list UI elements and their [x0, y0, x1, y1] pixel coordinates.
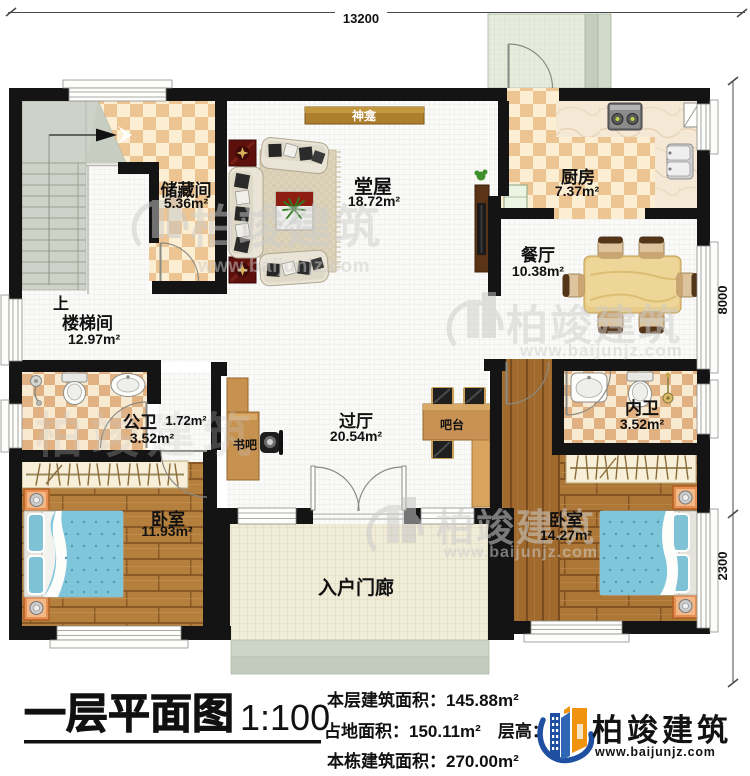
svg-text:入户门廊: 入户门廊: [318, 576, 394, 599]
svg-text:吧台: 吧台: [440, 417, 464, 432]
svg-text:14.27m²: 14.27m²: [540, 527, 592, 543]
svg-text:本栋建筑面积：270.00m²: 本栋建筑面积：270.00m²: [327, 751, 519, 771]
svg-text:本层建筑面积：145.88m²: 本层建筑面积：145.88m²: [327, 690, 519, 710]
svg-text:楼梯间: 楼梯间: [62, 313, 113, 333]
svg-text:11.93m²: 11.93m²: [141, 523, 193, 539]
svg-text:占地面积：150.11m² 层高：: 占地面积：150.11m² 层高：: [324, 721, 549, 741]
svg-text:柏竣建筑: 柏竣建筑: [592, 713, 732, 748]
svg-text:www.baijunjz.com: www.baijunjz.com: [519, 341, 683, 360]
svg-text:13200: 13200: [343, 11, 379, 26]
svg-text:一层平面图: 一层平面图: [24, 690, 234, 737]
svg-text:10.38m²: 10.38m²: [512, 263, 564, 279]
svg-text:3.52m²: 3.52m²: [130, 430, 175, 446]
svg-text:5.36m²: 5.36m²: [164, 195, 209, 211]
svg-text:餐厅: 餐厅: [521, 245, 555, 265]
svg-text:内卫: 内卫: [625, 398, 659, 418]
svg-text:神龛: 神龛: [352, 108, 377, 123]
svg-text:书吧: 书吧: [233, 437, 257, 452]
svg-text:12.97m²: 12.97m²: [68, 331, 120, 347]
svg-text:20.54m²: 20.54m²: [330, 428, 382, 444]
svg-text:www.baijunjz.com: www.baijunjz.com: [443, 544, 598, 561]
svg-text:上: 上: [53, 295, 69, 313]
svg-text:7.37m²: 7.37m²: [555, 183, 600, 199]
svg-text:www.baijunjz.com: www.baijunjz.com: [197, 256, 370, 277]
svg-text:www.baijunjz.com: www.baijunjz.com: [594, 745, 716, 759]
svg-text:1:100: 1:100: [240, 697, 330, 738]
svg-text:3.52m²: 3.52m²: [620, 416, 665, 432]
svg-text:1.72m²: 1.72m²: [165, 413, 207, 428]
svg-text:18.72m²: 18.72m²: [348, 193, 400, 209]
